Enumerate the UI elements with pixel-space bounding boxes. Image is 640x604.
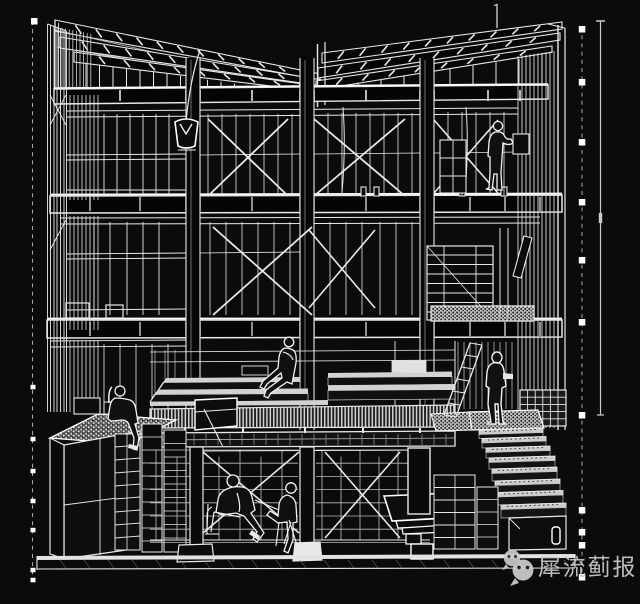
svg-text:犀流蓟报: 犀流蓟报 xyxy=(538,554,637,580)
